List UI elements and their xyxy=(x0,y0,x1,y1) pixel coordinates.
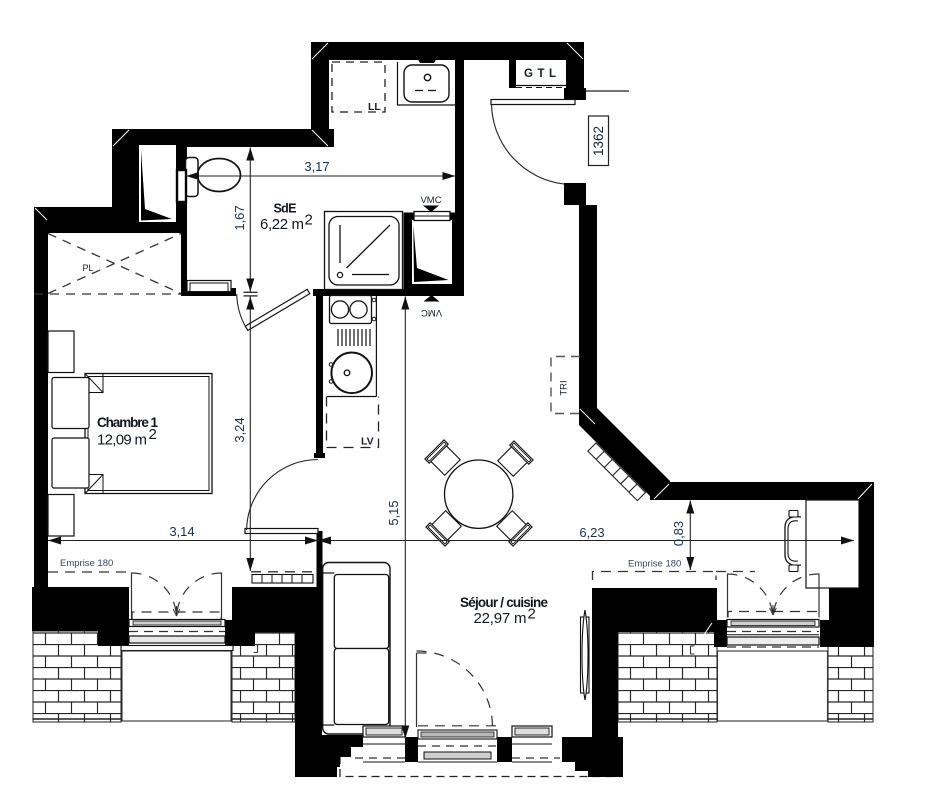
svg-text:PL: PL xyxy=(82,263,93,273)
svg-text:VMC: VMC xyxy=(421,307,442,318)
svg-text:0,83: 0,83 xyxy=(671,521,686,546)
svg-text:12,09 m: 12,09 m xyxy=(97,432,147,449)
svg-text:1,67: 1,67 xyxy=(232,205,247,230)
svg-text:2: 2 xyxy=(528,606,536,623)
svg-text:LV: LV xyxy=(361,436,374,448)
svg-text:22,97 m: 22,97 m xyxy=(474,610,527,627)
svg-text:SdE: SdE xyxy=(274,202,297,216)
svg-text:3,14: 3,14 xyxy=(169,524,194,539)
svg-text:LL: LL xyxy=(368,101,381,113)
svg-text:2: 2 xyxy=(305,212,313,229)
svg-text:Emprise 180: Emprise 180 xyxy=(60,558,113,569)
svg-text:3,24: 3,24 xyxy=(232,417,247,442)
svg-text:GTL: GTL xyxy=(524,68,558,80)
svg-text:3,17: 3,17 xyxy=(304,159,329,174)
svg-text:6,23: 6,23 xyxy=(579,525,604,540)
svg-text:5,15: 5,15 xyxy=(386,500,401,525)
svg-text:Emprise 180: Emprise 180 xyxy=(628,559,681,570)
svg-text:1362: 1362 xyxy=(591,126,606,156)
svg-text:2: 2 xyxy=(149,426,157,443)
svg-text:TRI: TRI xyxy=(559,380,570,395)
svg-text:6,22 m: 6,22 m xyxy=(260,216,304,233)
svg-text:VMC: VMC xyxy=(420,195,441,206)
